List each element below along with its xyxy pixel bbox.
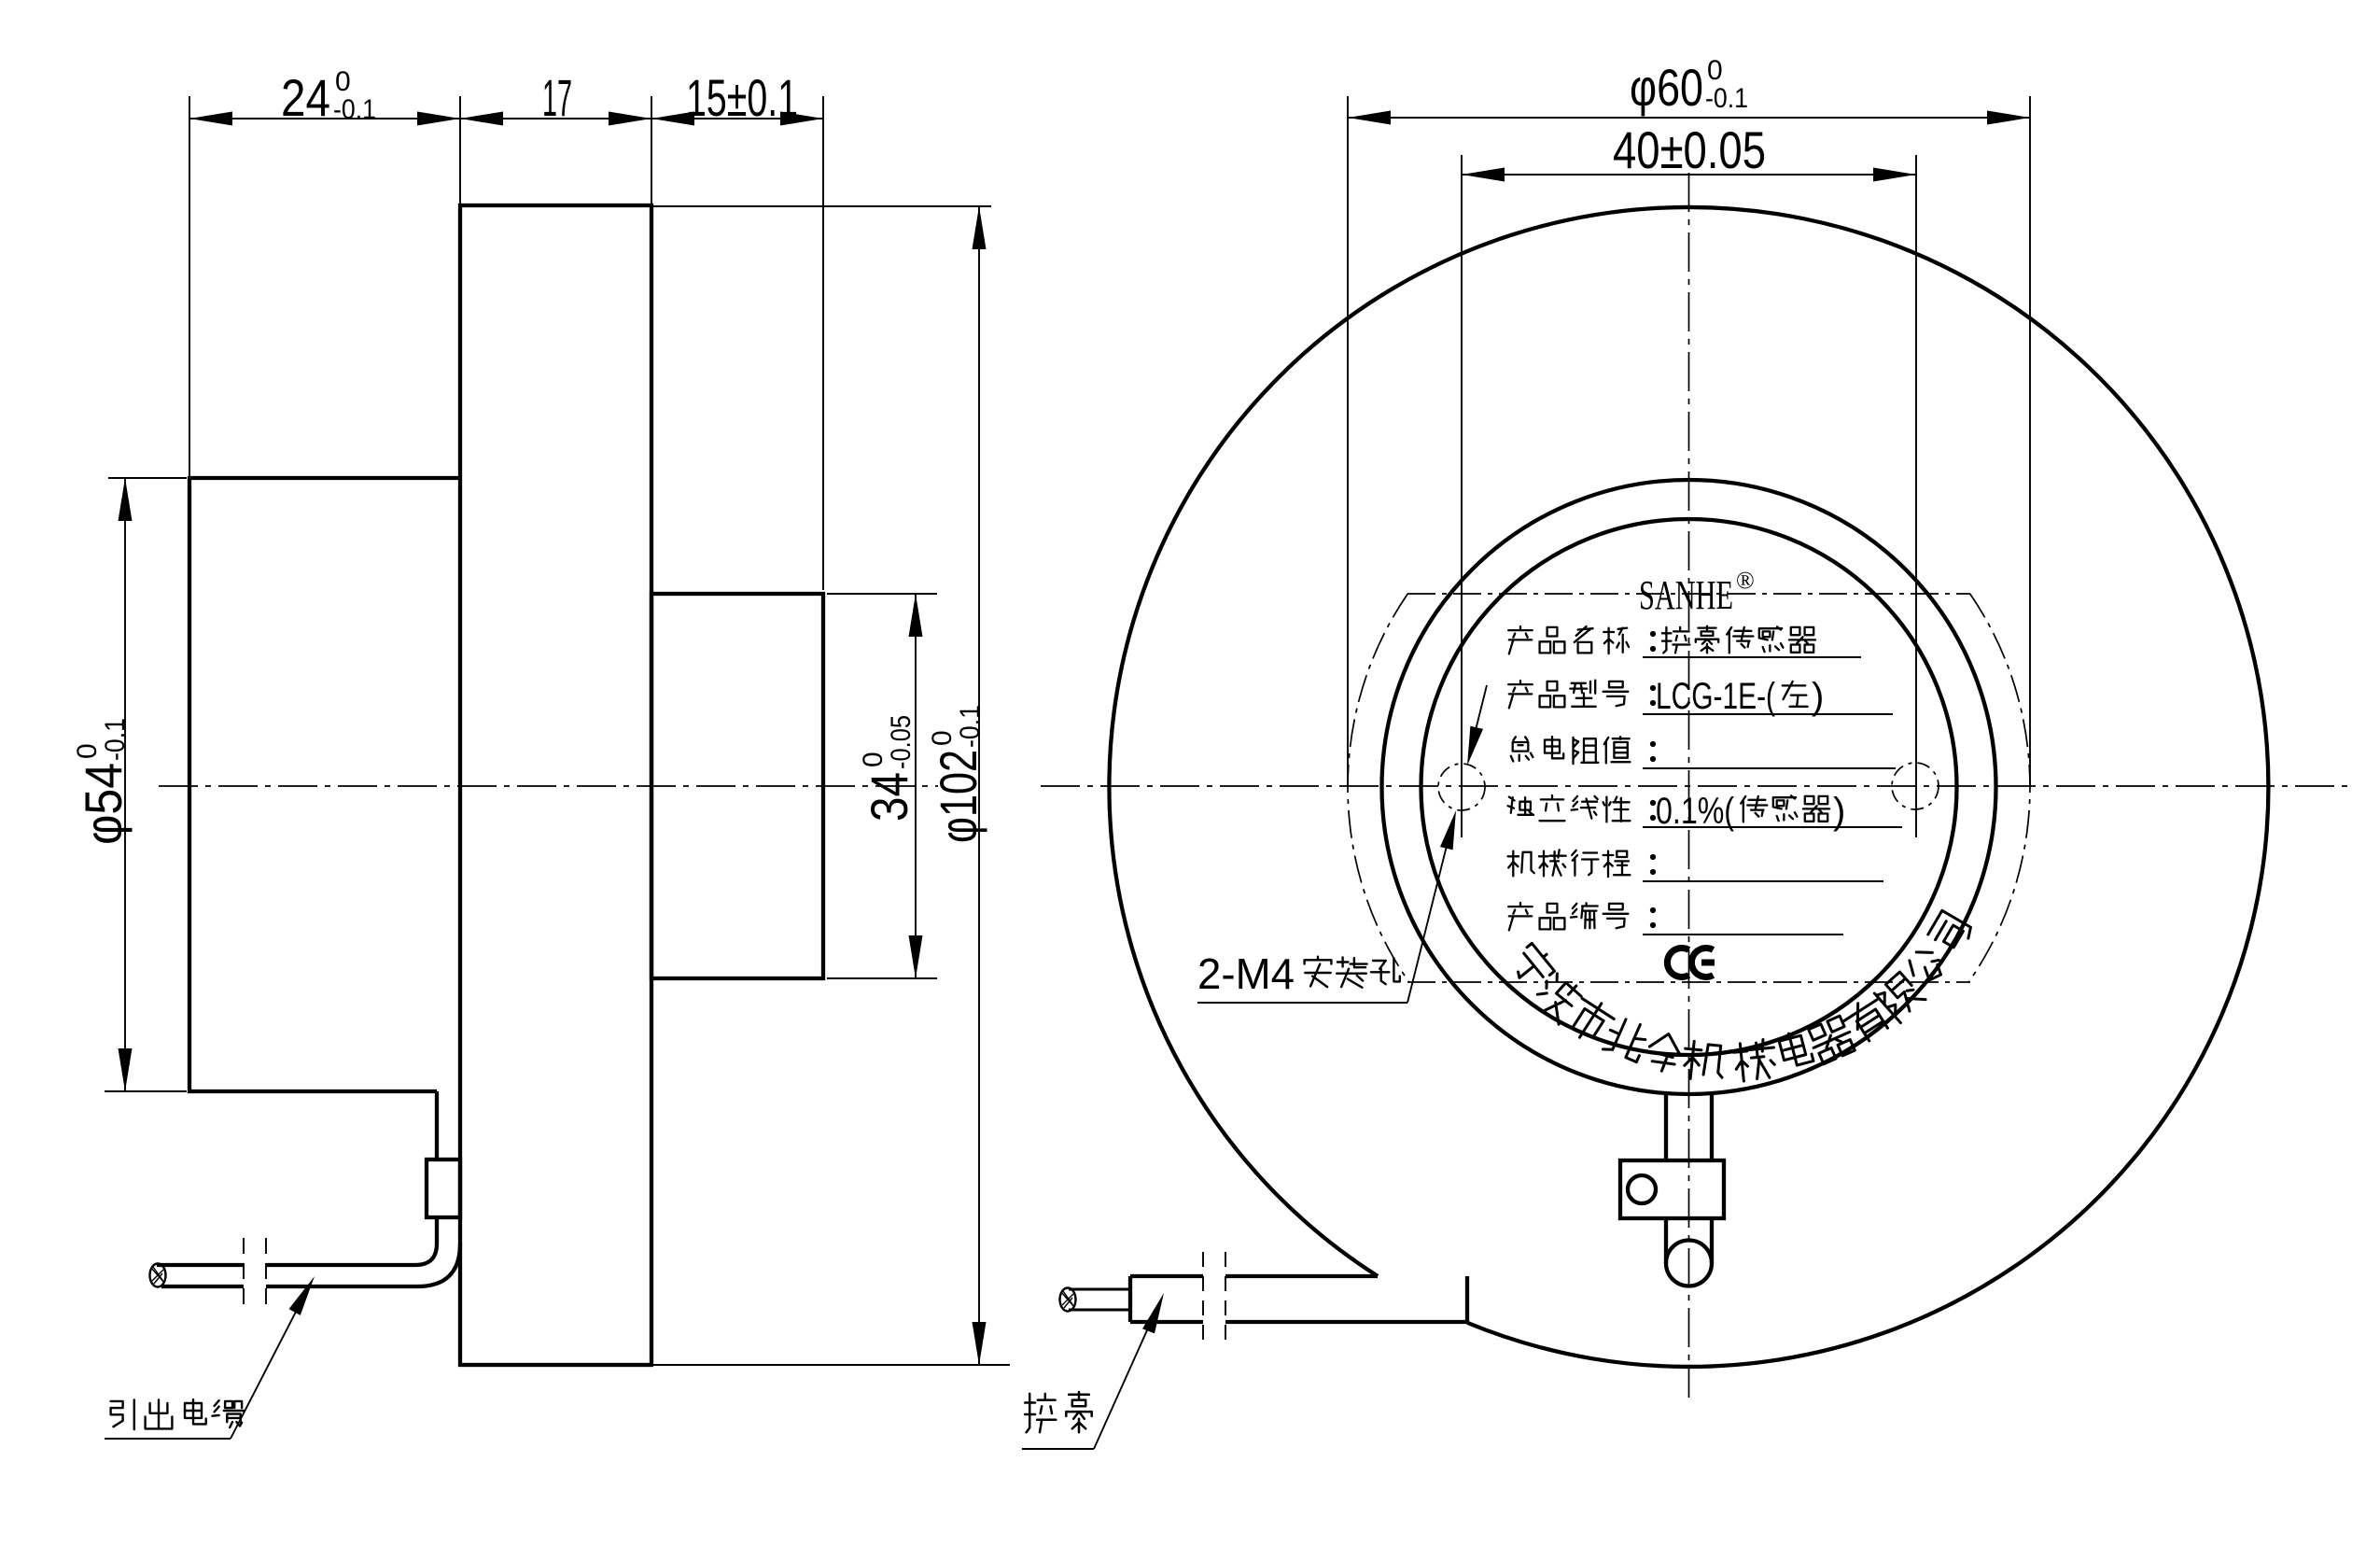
svg-text:0: 0 — [927, 730, 958, 746]
svg-text:-0.1: -0.1 — [1705, 83, 1748, 114]
svg-text:LCG-1E-(: LCG-1E-( — [1656, 676, 1776, 717]
svg-text:®: ® — [1736, 567, 1755, 594]
svg-text:0: 0 — [335, 66, 351, 97]
svg-text:φ102: φ102 — [929, 750, 987, 843]
svg-text:24: 24 — [281, 68, 330, 127]
svg-text:2-M4: 2-M4 — [1197, 949, 1295, 998]
svg-text:): ) — [1833, 791, 1845, 832]
svg-text:): ) — [1812, 676, 1824, 717]
svg-text:SANHE: SANHE — [1639, 572, 1733, 618]
svg-text:34: 34 — [860, 772, 918, 822]
svg-text:-0.1: -0.1 — [100, 718, 131, 761]
svg-text:40±0.05: 40±0.05 — [1613, 120, 1766, 179]
svg-text:-0.05: -0.05 — [886, 715, 917, 769]
svg-text:0.1%(: 0.1%( — [1656, 791, 1735, 832]
svg-text:-0.1: -0.1 — [955, 705, 986, 748]
svg-text:-0.1: -0.1 — [333, 94, 376, 125]
svg-text:0: 0 — [1707, 55, 1723, 86]
svg-text:15±0.1: 15±0.1 — [686, 68, 798, 127]
svg-text:0: 0 — [858, 752, 889, 767]
svg-text:0: 0 — [72, 743, 103, 759]
svg-text:17: 17 — [542, 68, 572, 127]
svg-text:φ54: φ54 — [74, 763, 133, 845]
svg-text:φ60: φ60 — [1630, 58, 1703, 117]
